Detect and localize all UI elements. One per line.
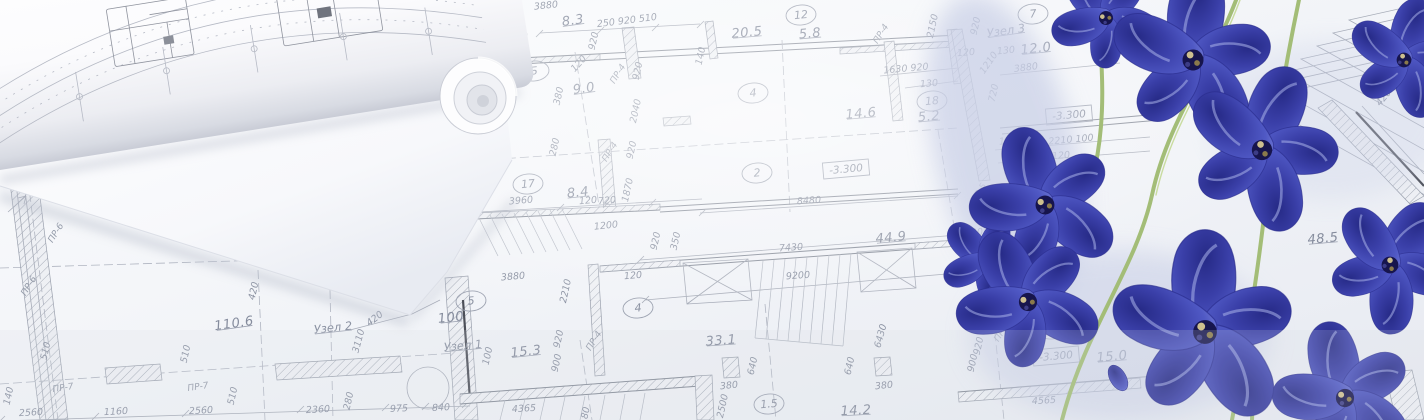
scene-canvas: Architectural floor plan blueprint banne… bbox=[0, 0, 1424, 420]
svg-text:48.5: 48.5 bbox=[1307, 230, 1339, 248]
roll-curl bbox=[440, 58, 516, 134]
room-area-label: 100 bbox=[437, 309, 465, 327]
hero-banner: Architectural floor plan blueprint banne… bbox=[0, 0, 1424, 420]
vignette bbox=[0, 330, 1424, 420]
svg-text:100: 100 bbox=[437, 309, 465, 327]
room-area-label: 48.5 bbox=[1307, 230, 1339, 248]
svg-text:4: 4 bbox=[634, 301, 642, 315]
